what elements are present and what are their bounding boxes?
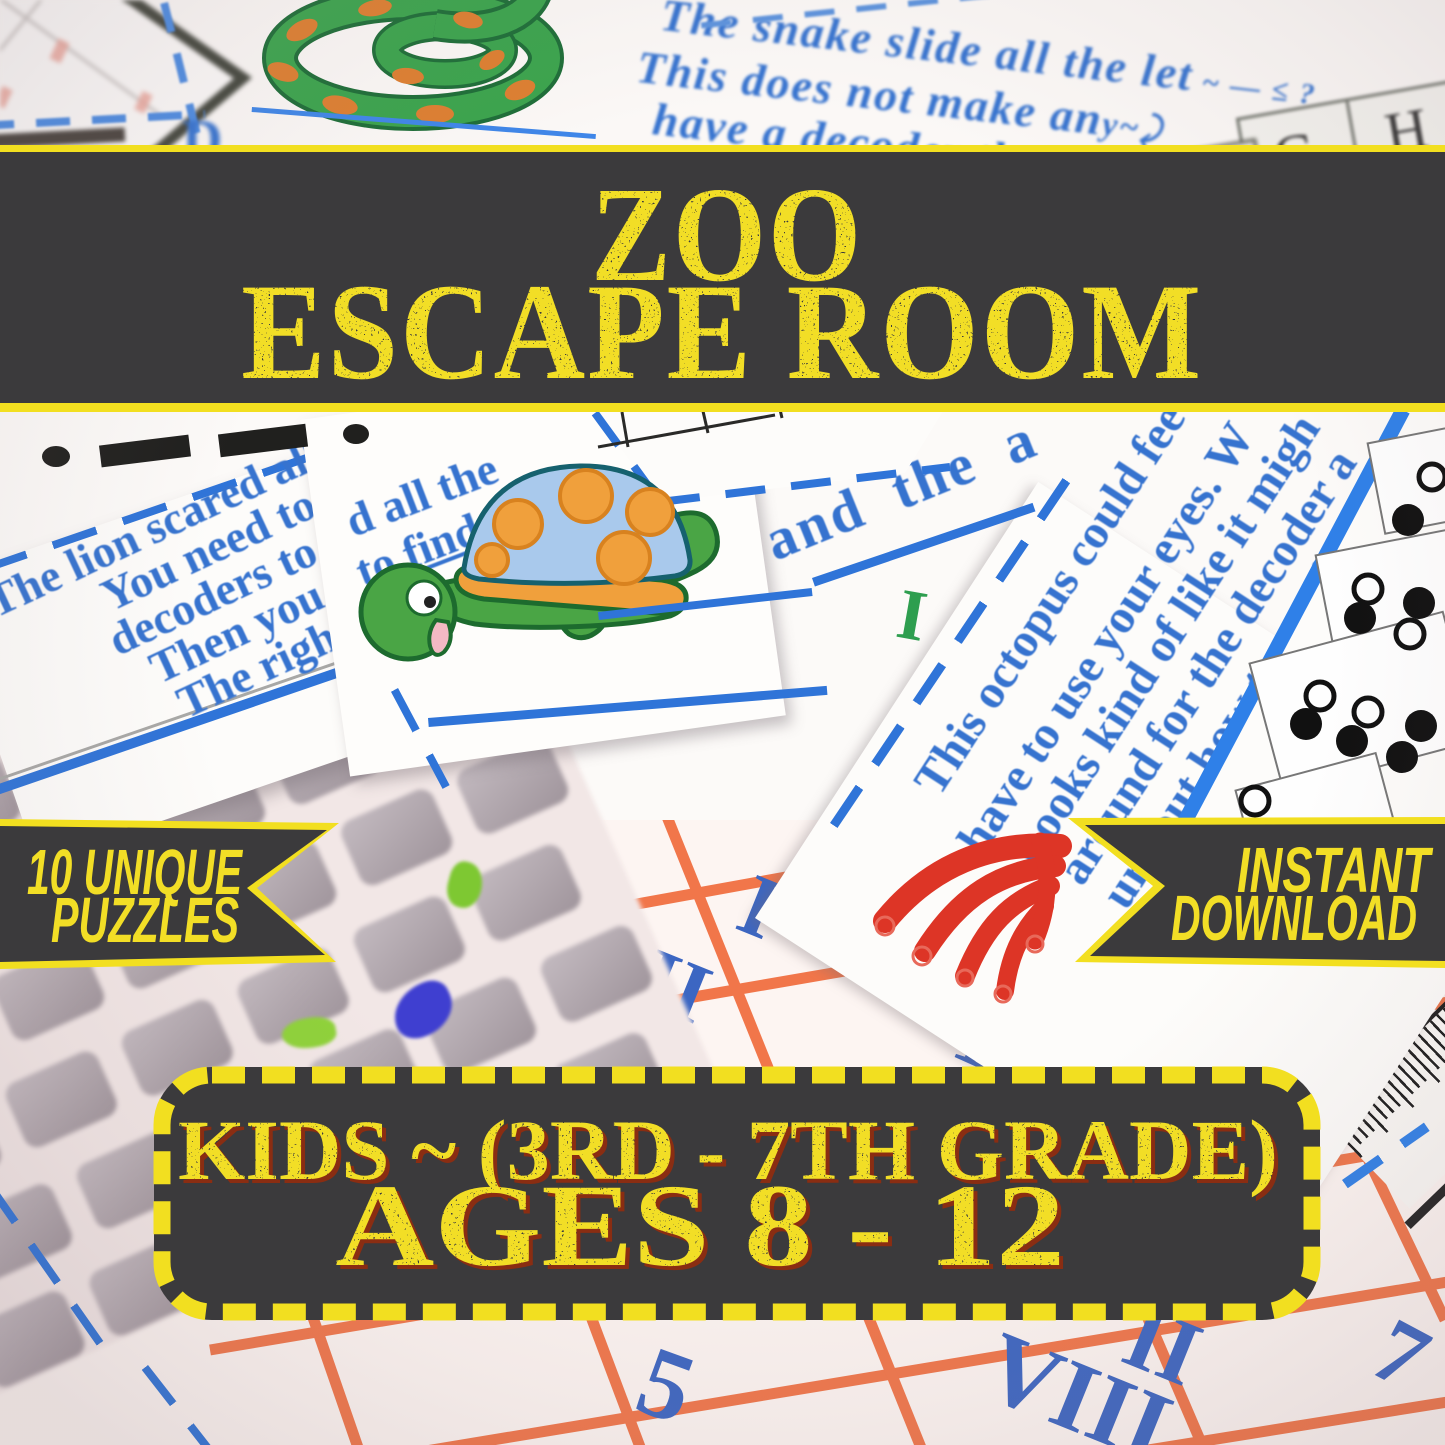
svg-text:DOWNLOAD: DOWNLOAD [1171,882,1417,954]
svg-text:PUZZLES: PUZZLES [51,884,239,956]
svg-text:AGES 8 - 12: AGES 8 - 12 [335,1160,1065,1291]
svg-text:ESCAPE ROOM: ESCAPE ROOM [241,255,1203,403]
